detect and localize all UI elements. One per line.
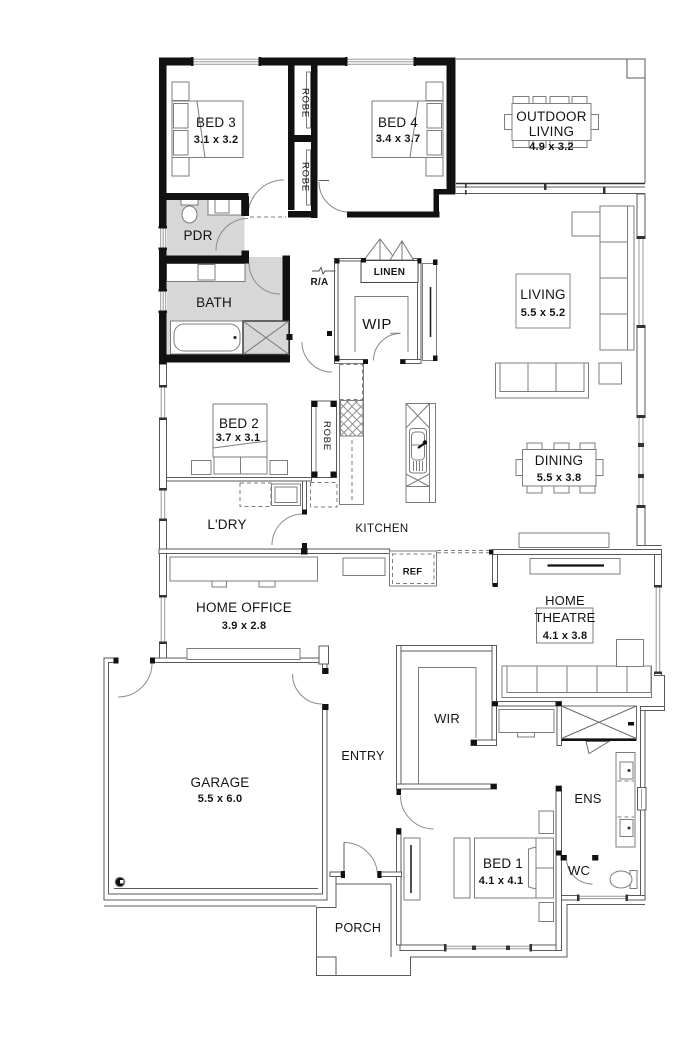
svg-text:R/A: R/A <box>310 277 328 288</box>
svg-text:5.5 x 3.8: 5.5 x 3.8 <box>537 472 582 484</box>
svg-text:ROBE: ROBE <box>321 421 332 451</box>
svg-text:3.7 x 3.1: 3.7 x 3.1 <box>216 432 261 444</box>
svg-text:BATH: BATH <box>196 295 232 310</box>
svg-text:KITCHEN: KITCHEN <box>355 523 408 535</box>
svg-text:HOME: HOME <box>545 593 585 608</box>
svg-text:REF: REF <box>403 567 423 578</box>
svg-text:BED 1: BED 1 <box>483 856 523 871</box>
svg-text:BED 2: BED 2 <box>219 416 259 431</box>
svg-text:3.9 x 2.8: 3.9 x 2.8 <box>222 620 267 632</box>
svg-text:4.1 x 4.1: 4.1 x 4.1 <box>479 875 524 887</box>
svg-text:4.1 x 3.8: 4.1 x 3.8 <box>543 630 588 642</box>
svg-text:L'DRY: L'DRY <box>207 517 246 532</box>
svg-text:ENTRY: ENTRY <box>341 749 385 763</box>
svg-text:ROBE: ROBE <box>300 162 311 192</box>
svg-text:BED 3: BED 3 <box>196 115 236 130</box>
svg-text:LINEN: LINEN <box>374 267 406 278</box>
svg-text:GARAGE: GARAGE <box>191 775 250 790</box>
svg-text:3.4 x 3.7: 3.4 x 3.7 <box>376 133 421 145</box>
svg-text:3.1 x 3.2: 3.1 x 3.2 <box>194 134 239 146</box>
svg-text:LIVING: LIVING <box>529 124 574 139</box>
svg-text:HOME OFFICE: HOME OFFICE <box>196 600 292 615</box>
svg-text:ROBE: ROBE <box>300 88 311 118</box>
svg-text:WIP: WIP <box>362 316 392 333</box>
svg-text:OUTDOOR: OUTDOOR <box>516 109 586 124</box>
svg-text:PDR: PDR <box>183 228 212 243</box>
svg-text:WC: WC <box>568 863 590 878</box>
svg-text:WIR: WIR <box>434 711 460 726</box>
svg-text:THEATRE: THEATRE <box>534 610 595 625</box>
svg-text:5.5 x 6.0: 5.5 x 6.0 <box>198 793 243 805</box>
svg-text:5.5 x 5.2: 5.5 x 5.2 <box>521 307 566 319</box>
svg-text:4.9 x 3.2: 4.9 x 3.2 <box>529 141 574 153</box>
svg-text:PORCH: PORCH <box>335 921 381 935</box>
svg-text:DINING: DINING <box>535 453 583 468</box>
svg-text:LIVING: LIVING <box>520 287 565 302</box>
svg-text:BED 4: BED 4 <box>378 115 418 130</box>
svg-text:ENS: ENS <box>574 791 601 806</box>
